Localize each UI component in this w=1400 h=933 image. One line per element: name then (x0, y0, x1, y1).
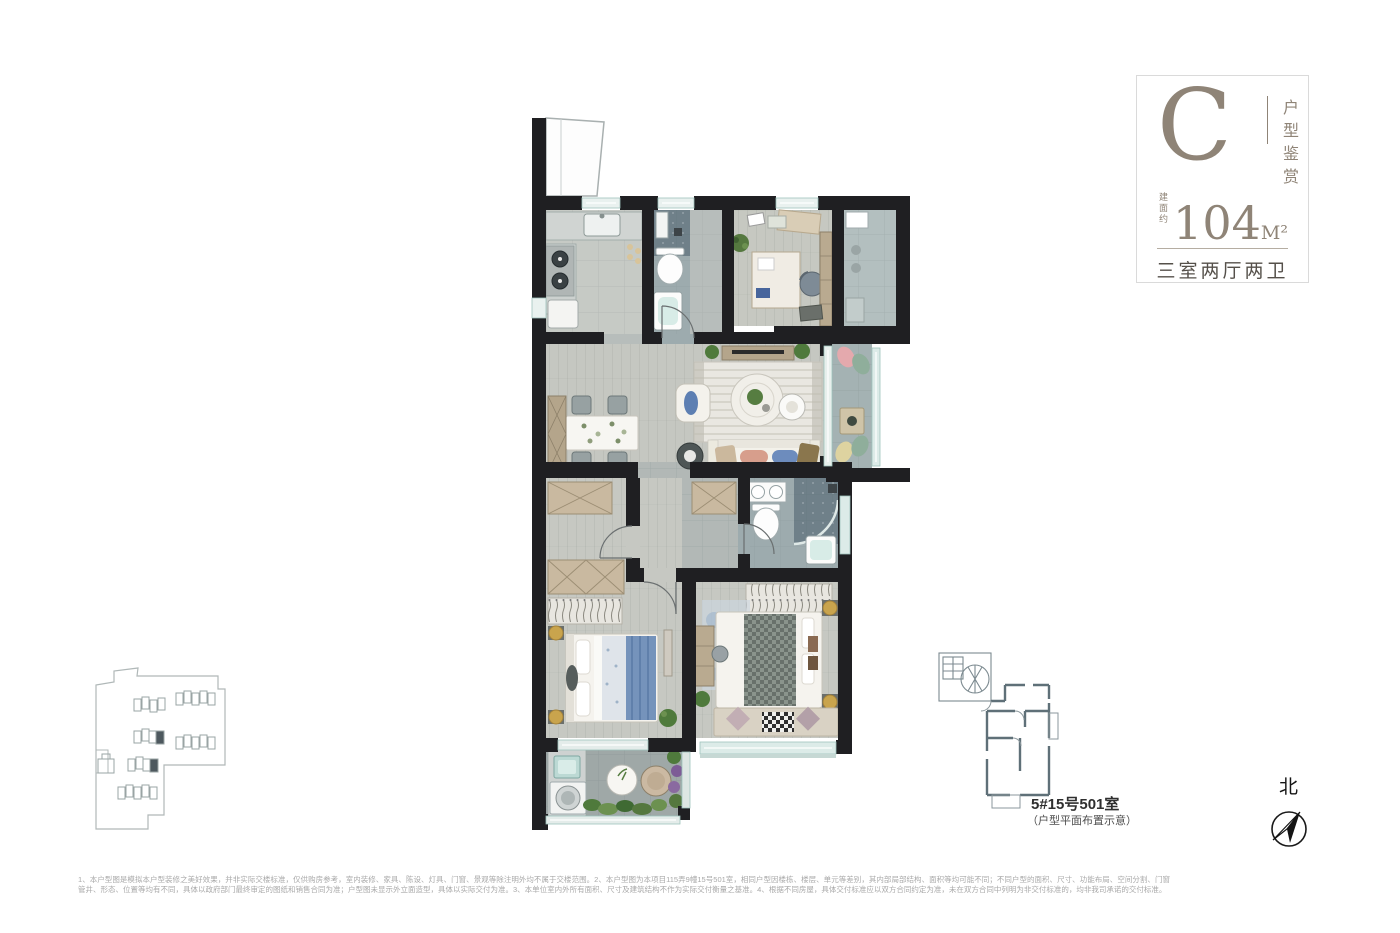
lamp (823, 695, 837, 709)
sideboard (548, 396, 566, 472)
area-row: 建面约104M² (1137, 192, 1308, 250)
area-value: 104 (1173, 196, 1261, 250)
laptop (756, 288, 770, 298)
closet (548, 482, 612, 514)
floor-plan-page: { "badge": { "type_letter": "C", "series… (0, 0, 1400, 933)
unit-type-badge: C 户型鉴赏 建面约104M² 三室两厅两卫 (1136, 75, 1309, 283)
sofa-pillow (740, 450, 768, 464)
toilet-2 (753, 508, 779, 540)
dining-chair (608, 396, 627, 414)
bedroom2-furniture (694, 584, 838, 736)
highlighted-building (156, 731, 164, 744)
series-label: 户型鉴赏 (1276, 99, 1300, 191)
north-arrow-icon (1254, 799, 1324, 855)
area-prefix: 建面约 (1157, 192, 1170, 225)
unit-type-letter: C (1157, 70, 1232, 183)
kitchen-cart (548, 300, 578, 328)
north-label: 北 (1254, 772, 1324, 799)
chair (712, 646, 728, 662)
plant (705, 345, 719, 359)
disclaimer-text: 1、本户型图是模拟本户型装修之美好效果，并非实际交楼标准，仅供购房参考，室内装修… (78, 875, 1170, 895)
closet (692, 482, 736, 514)
site-buildings (98, 691, 215, 799)
key-plan-unit-label: 5#15号501室 (1031, 793, 1119, 814)
toilet-1 (657, 254, 683, 284)
plant (794, 343, 810, 359)
key-plan-caption: （户型平面布置示意） (1027, 812, 1137, 828)
plant (694, 691, 710, 707)
showerhead (674, 228, 682, 236)
lamp (823, 601, 837, 615)
showerhead (828, 484, 837, 493)
disclaimer-line2: 3、本单位室内外所有面积、尺寸及建筑结构不作为实际交付衡量之基准。4、根据不同房… (513, 885, 1166, 894)
duvet (626, 636, 656, 720)
lamp (549, 626, 563, 640)
key-plan: 5#15号501室 （户型平面布置示意） (925, 643, 1135, 838)
ac-platform (546, 118, 604, 196)
closet (548, 560, 624, 594)
sofa-pillow (772, 450, 798, 464)
dresser (694, 626, 714, 686)
area-unit: M² (1261, 222, 1288, 244)
plant (659, 709, 677, 727)
layout-label: 三室两厅两卫 (1137, 256, 1308, 283)
main-floor-plan (525, 95, 945, 845)
lamp (549, 710, 563, 724)
dining-table (566, 416, 638, 450)
dining-chair (572, 396, 591, 414)
badge-divider-line (1267, 96, 1268, 144)
highlighted-building (150, 759, 158, 772)
site-plan (68, 655, 238, 850)
compass: 北 (1254, 772, 1324, 850)
plant (747, 389, 763, 405)
badge-rule (1157, 248, 1288, 249)
